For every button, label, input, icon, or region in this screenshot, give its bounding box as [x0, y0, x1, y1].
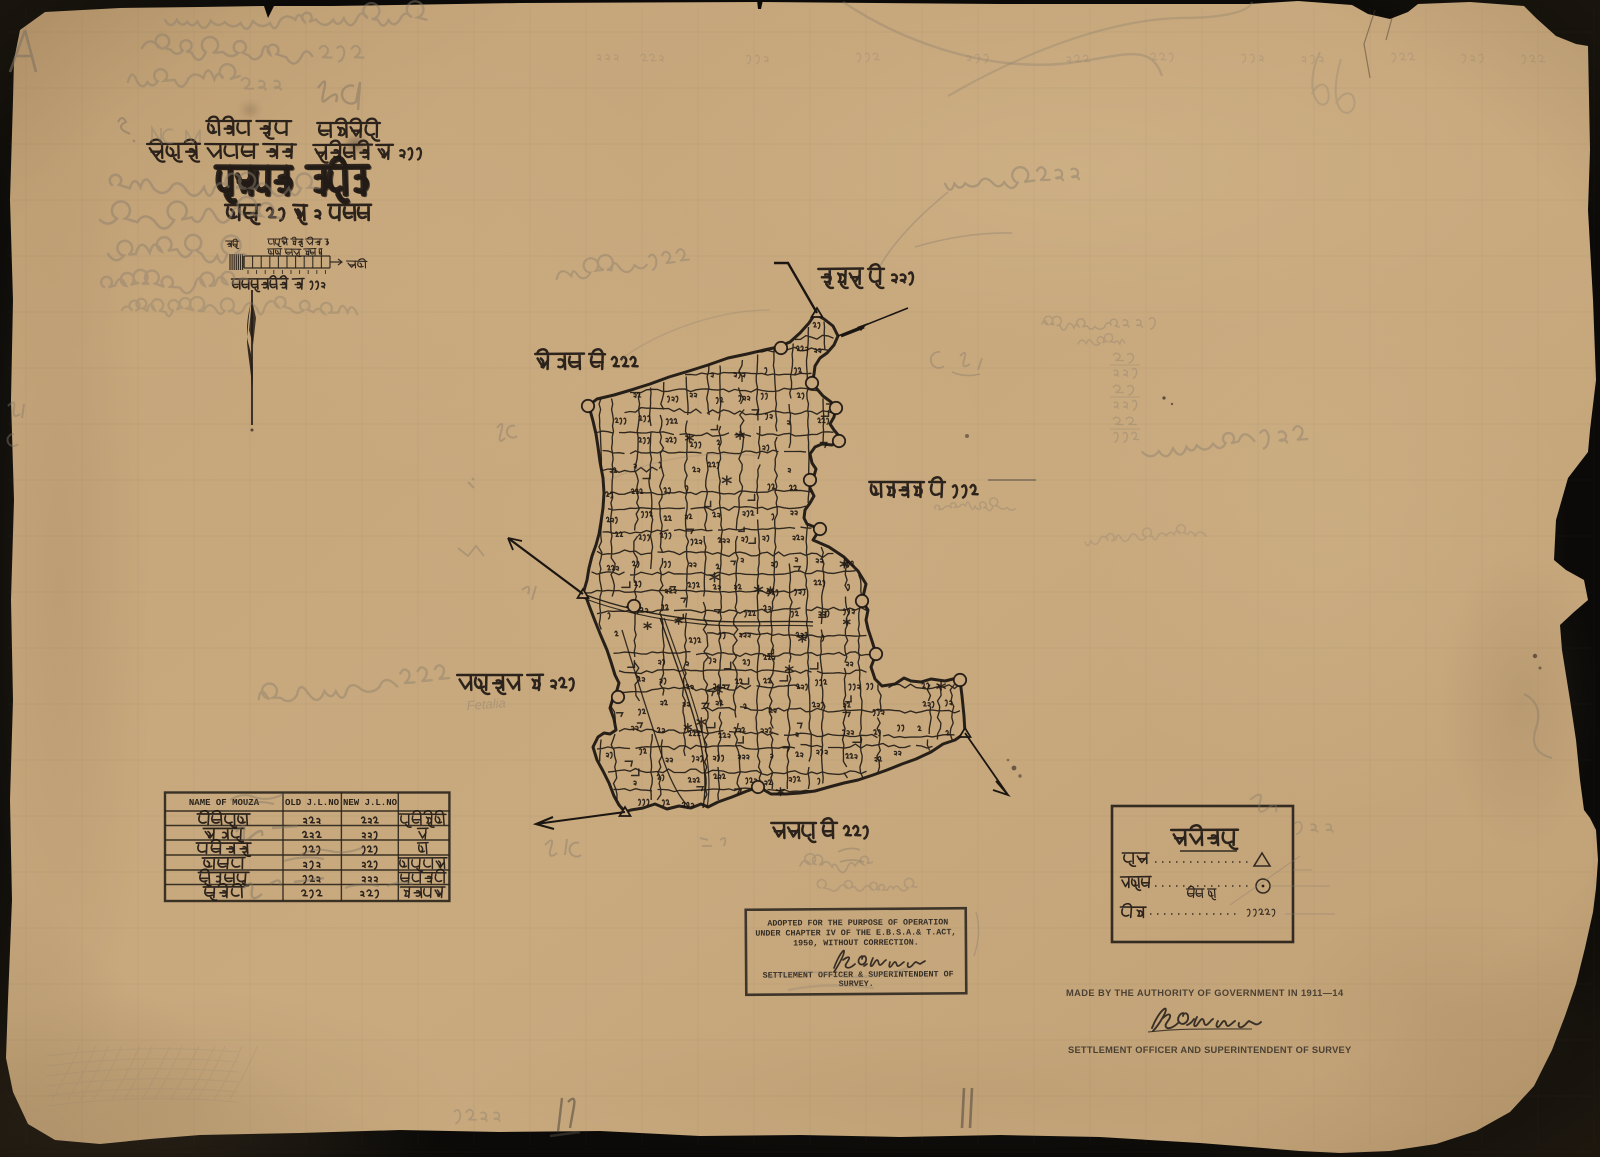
svg-text:Fetalia: Fetalia — [466, 695, 506, 713]
svg-text:MADE BY THE AUTHORITY OF GOVER: MADE BY THE AUTHORITY OF GOVERNMENT IN 1… — [1066, 988, 1344, 998]
svg-text:SETTLEMENT OFFICER AND SUPERIN: SETTLEMENT OFFICER AND SUPERINTENDENT OF… — [1068, 1045, 1352, 1055]
svg-text:UNDER CHAPTER IV OF THE E.B.S.: UNDER CHAPTER IV OF THE E.B.S.A.& T.ACT, — [755, 927, 956, 938]
svg-text:NEW J.L.NO: NEW J.L.NO — [343, 798, 398, 808]
svg-text:OLD J.L.NO: OLD J.L.NO — [285, 798, 340, 808]
svg-text:1950, WITHOUT CORRECTION.: 1950, WITHOUT CORRECTION. — [793, 938, 919, 949]
